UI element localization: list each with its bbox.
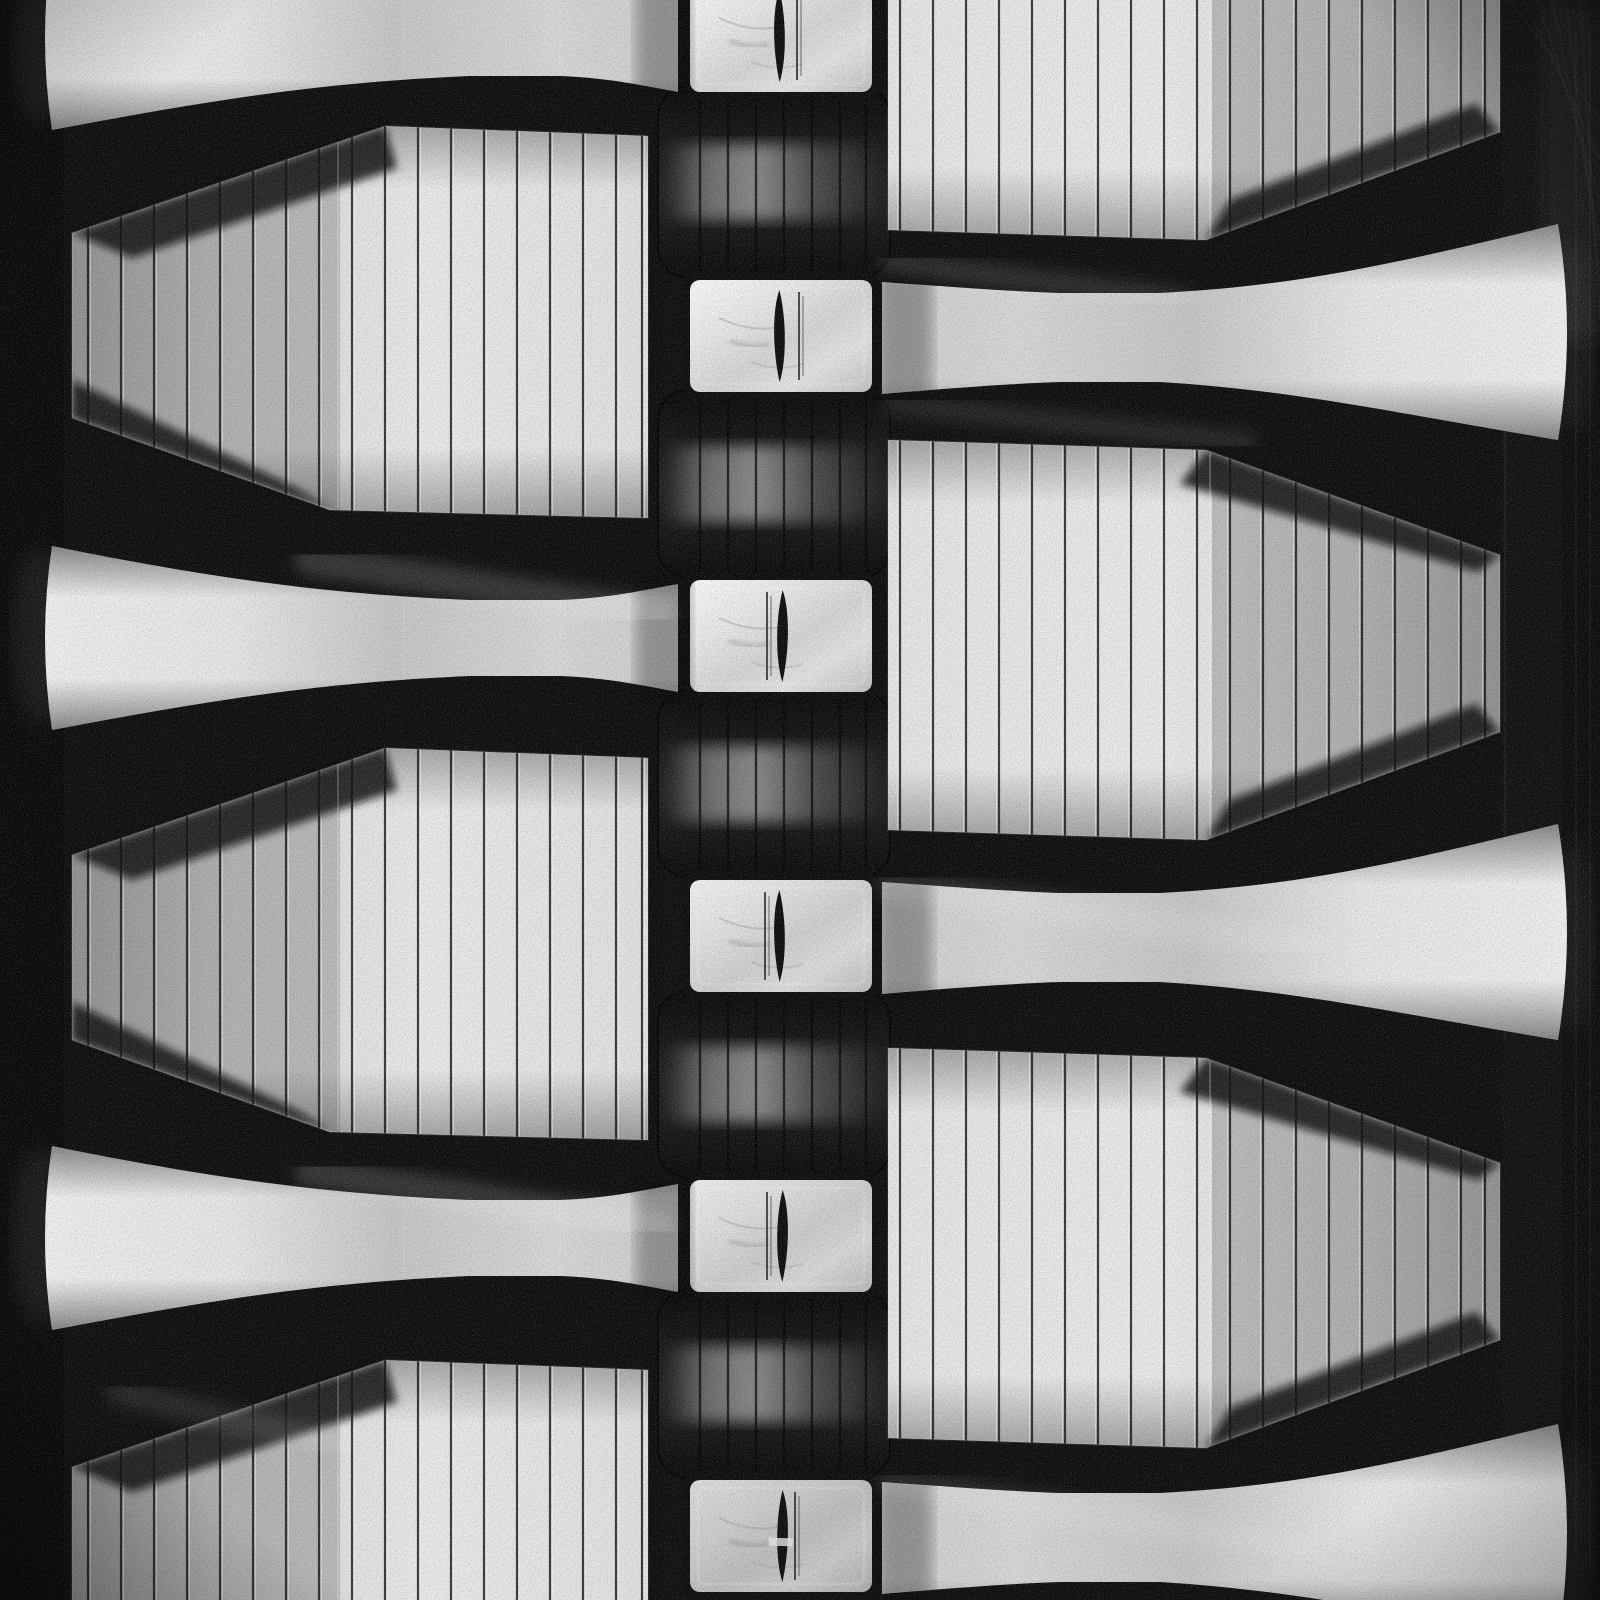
track-scene <box>0 0 1600 1600</box>
vignette <box>0 0 1600 1600</box>
rubber-track-macro-photo: Macro photograph of a black rubber crawl… <box>0 0 1600 1600</box>
